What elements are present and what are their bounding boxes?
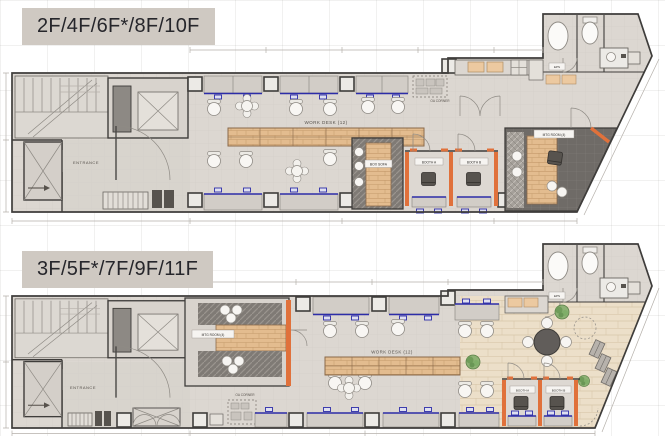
box-sofa-label: BOX SOFA: [370, 163, 388, 167]
oa-corner-label: OA CORNER: [430, 99, 450, 103]
entrance-label: ENTRANCE: [70, 385, 96, 390]
plant: [466, 355, 480, 369]
folding-entrance-doors: [133, 408, 180, 426]
oa-corner-label: OA CORNER: [235, 393, 255, 397]
mtg-room-label: MTG ROOM (4): [543, 133, 566, 137]
eps-label: EPS: [554, 294, 560, 298]
work-desk-label: WORK DESK (12): [304, 120, 347, 125]
work-desk-label: WORK DESK (12): [371, 350, 413, 355]
mtg-room-label: MTG ROOM (4): [202, 333, 225, 337]
floor-plan-canvas: WORK DESK (12) BOX SOFA BOOTH A: [0, 0, 665, 436]
floor-badge-upper: 2F/4F/6F*/8F/10F: [22, 8, 215, 45]
booth-a-label: BOOTH A: [422, 160, 437, 164]
entrance-storage: [68, 411, 111, 426]
booth-a-label: BOOTH A: [516, 388, 529, 392]
entrance-label: ENTRANCE: [73, 160, 99, 165]
plant: [578, 375, 589, 386]
booth-b-label: BOOTH B: [467, 160, 481, 164]
eps-label: EPS: [554, 65, 560, 69]
floor-badge-lower: 3F/5F*/7F/9F/11F: [22, 251, 213, 288]
floor-plan-sheet: WORK DESK (12) BOX SOFA BOOTH A: [0, 0, 665, 436]
plan-upper: WORK DESK (12) BOX SOFA BOOTH A: [3, 14, 659, 224]
work-desk-table: [325, 357, 460, 375]
box-sofa-room: BOX SOFA: [352, 138, 403, 209]
booth-b-label: BOOTH B: [552, 388, 566, 392]
plant: [555, 305, 569, 319]
mtg-room: MTG ROOM (4): [185, 298, 307, 386]
